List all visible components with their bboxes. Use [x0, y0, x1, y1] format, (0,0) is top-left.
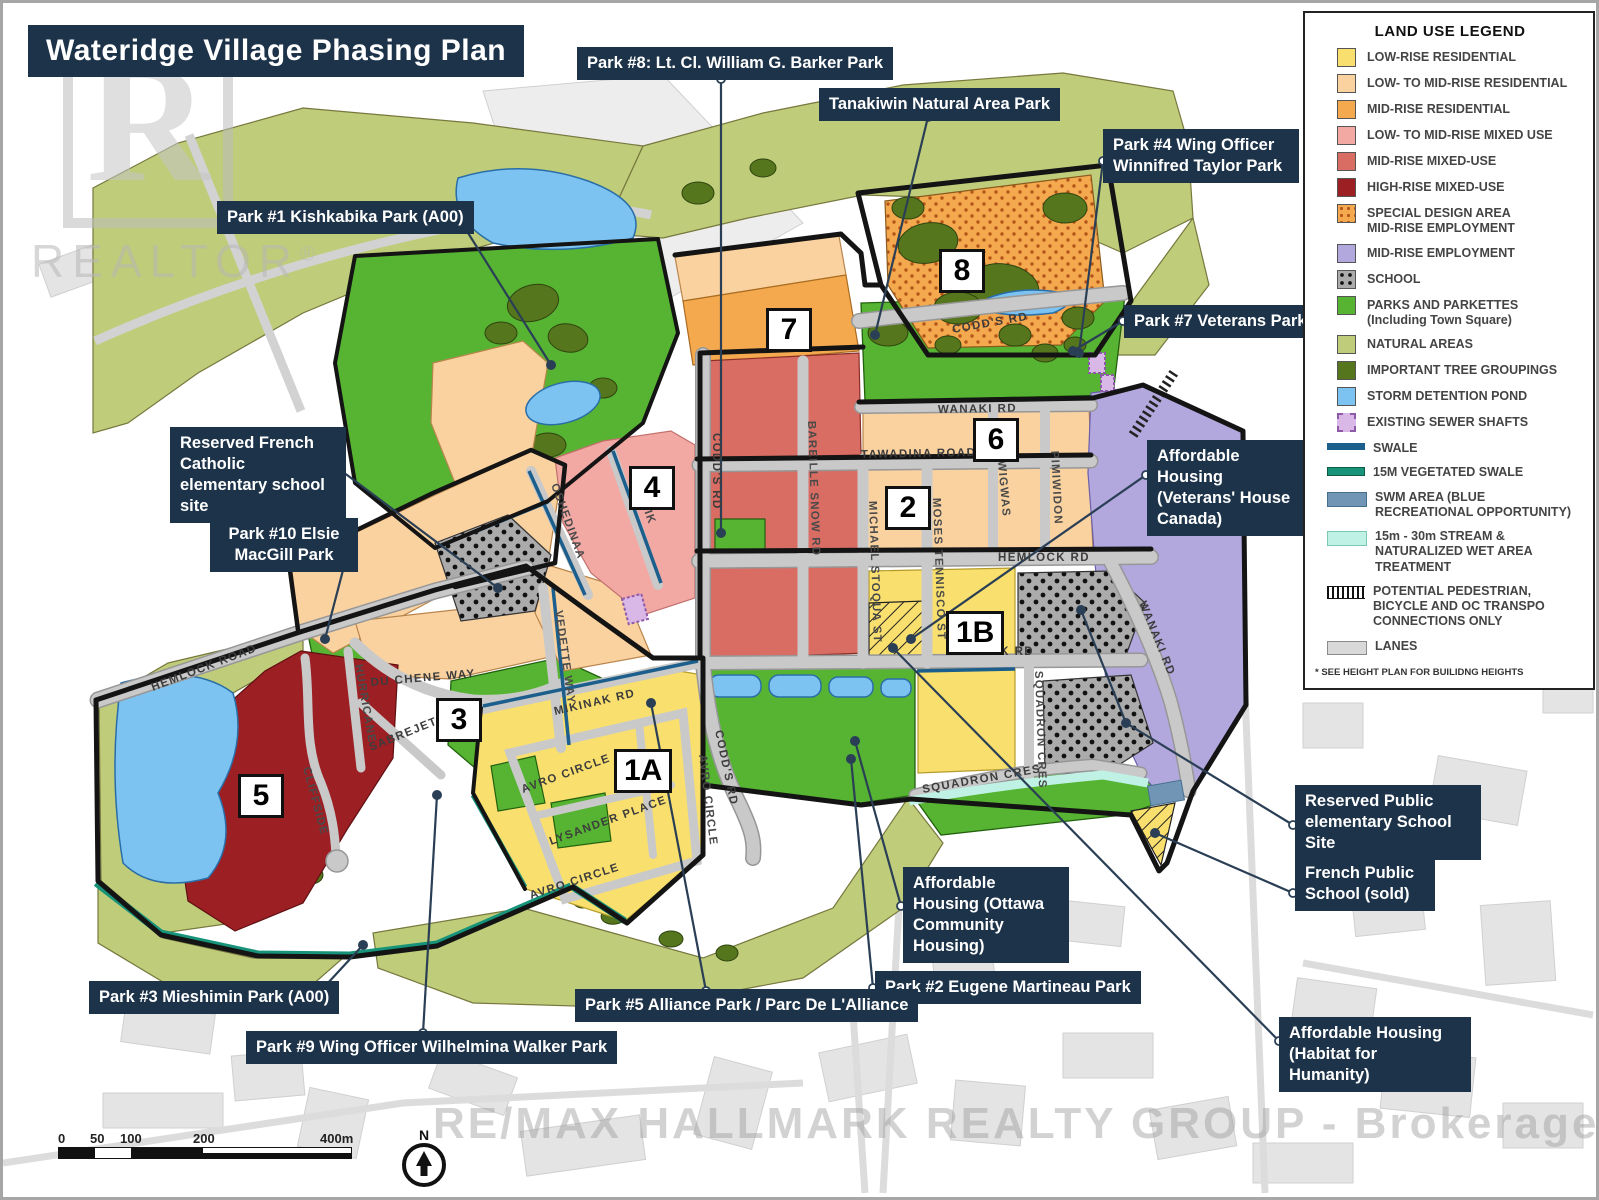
- swatch-mid-mixed: [1337, 152, 1356, 171]
- swatch-stream: [1327, 531, 1367, 546]
- callout-park1: Park #1 Kishkabika Park (A00): [217, 201, 474, 234]
- phase-label-1a: 1A: [614, 749, 672, 793]
- swatch-swm: [1327, 492, 1367, 507]
- callout-park3: Park #3 Mieshimin Park (A00): [89, 981, 339, 1014]
- callout-park5: Park #5 Alliance Park / Parc De L'Allian…: [575, 989, 918, 1022]
- phase-label-5: 5: [238, 774, 284, 818]
- scale-tick-100: 100: [120, 1131, 142, 1146]
- swatch-mid-res: [1337, 100, 1356, 119]
- street-label-codds-rd-central: CODD'S RD: [710, 433, 722, 510]
- swatch-parks: [1337, 296, 1356, 315]
- phase-label-8: 8: [939, 249, 985, 293]
- legend-item-tree-groupings: IMPORTANT TREE GROUPINGS: [1315, 361, 1585, 380]
- callout-french-public-school: French Public School (sold): [1295, 857, 1435, 911]
- callout-park10: Park #10 Elsie MacGill Park: [210, 518, 358, 572]
- phase-label-3: 3: [436, 698, 482, 742]
- page-title: Wateridge Village Phasing Plan: [28, 25, 524, 77]
- legend-item-veg-swale: 15M VEGETATED SWALE: [1315, 463, 1585, 480]
- swatch-swale: [1327, 443, 1365, 450]
- cliffside-cul-de-sac: [326, 850, 348, 872]
- legend-item-mid-residential: MID-RISE RESIDENTIAL: [1315, 100, 1585, 119]
- callout-public-school: Reserved Public elementary School Site: [1295, 785, 1481, 860]
- legend-item-pedestrian: POTENTIAL PEDESTRIAN, BICYCLE AND OC TRA…: [1315, 582, 1585, 630]
- legend-item-low-mid-mixed: LOW- TO MID-RISE MIXED USE: [1315, 126, 1585, 145]
- legend-item-sewer-shafts: EXISTING SEWER SHAFTS: [1315, 413, 1585, 432]
- legend-item-mid-mixed: MID-RISE MIXED-USE: [1315, 152, 1585, 171]
- legend-item-swm-area: SWM AREA (BLUE RECREATIONAL OPPORTUNITY): [1315, 488, 1585, 521]
- callout-habitat: Affordable Housing (Habitat for Humanity…: [1279, 1017, 1471, 1092]
- legend-item-swale: SWALE: [1315, 439, 1585, 456]
- phase-label-6: 6: [973, 418, 1019, 462]
- swatch-lanes: [1327, 641, 1367, 655]
- callout-ottawa-community-housing: Affordable Housing (Ottawa Community Hou…: [903, 867, 1069, 963]
- zone-mid-mixed-r3: [703, 561, 867, 659]
- phasing-plan-page: CODD'S RD CODD'S RD CODD'S RD WANAKI RD …: [0, 0, 1599, 1200]
- swatch-mid-employment: [1337, 244, 1356, 263]
- land-use-legend: LAND USE LEGEND LOW-RISE RESIDENTIAL LOW…: [1303, 11, 1595, 690]
- swatch-pedestrian: [1327, 586, 1365, 599]
- legend-item-high-mixed: HIGH-RISE MIXED-USE: [1315, 178, 1585, 197]
- swatch-sewer: [1337, 413, 1356, 432]
- scale-tick-0: 0: [58, 1131, 65, 1146]
- legend-item-low-rise-residential: LOW-RISE RESIDENTIAL: [1315, 48, 1585, 67]
- scale-bar: 0 50 100 200 400m: [58, 1131, 358, 1159]
- callout-french-catholic-school: Reserved French Catholic elementary scho…: [170, 427, 346, 523]
- phase-label-2: 2: [885, 486, 931, 530]
- swatch-high-mixed: [1337, 178, 1356, 197]
- swatch-trees: [1337, 361, 1356, 380]
- callout-tanakiwin: Tanakiwin Natural Area Park: [819, 88, 1060, 121]
- swatch-veg-swale: [1327, 467, 1365, 476]
- legend-item-mid-employment: MID-RISE EMPLOYMENT: [1315, 244, 1585, 263]
- legend-title: LAND USE LEGEND: [1315, 23, 1585, 40]
- swatch-low-mid-mixed: [1337, 126, 1356, 145]
- swatch-low-rise: [1337, 48, 1356, 67]
- street-label-hemlock-rd: HEMLOCK RD: [998, 552, 1090, 564]
- scale-tick-200: 200: [193, 1131, 215, 1146]
- callout-park7: Park #7 Veterans Park: [1124, 305, 1316, 338]
- legend-item-stream: 15m - 30m STREAM & NATURALIZED WET AREA …: [1315, 527, 1585, 575]
- street-label-tawadina-road: TAWADINA ROAD: [861, 447, 977, 461]
- legend-item-low-mid-residential: LOW- TO MID-RISE RESIDENTIAL: [1315, 74, 1585, 93]
- phase-label-1b: 1B: [946, 611, 1004, 655]
- scale-tick-50: 50: [90, 1131, 104, 1146]
- legend-item-parks: PARKS AND PARKETTES (Including Town Squa…: [1315, 296, 1585, 329]
- legend-item-natural-areas: NATURAL AREAS: [1315, 335, 1585, 354]
- legend-item-special-design: SPECIAL DESIGN AREA MID-RISE EMPLOYMENT: [1315, 204, 1585, 237]
- scale-tick-400: 400m: [320, 1131, 353, 1146]
- callout-park8: Park #8: Lt. Cl. William G. Barker Park: [577, 47, 893, 80]
- callout-veterans-house: Affordable Housing (Veterans' House Cana…: [1147, 440, 1315, 536]
- swatch-school: [1337, 270, 1356, 289]
- callout-park4: Park #4 Wing Officer Winnifred Taylor Pa…: [1103, 129, 1299, 183]
- swatch-natural: [1337, 335, 1356, 354]
- legend-item-lanes: LANES: [1315, 637, 1585, 655]
- swatch-pond: [1337, 387, 1356, 406]
- phase-label-7: 7: [766, 308, 812, 352]
- street-label-wanaki-rd: WANAKI RD: [938, 403, 1017, 416]
- phase-label-4: 4: [629, 466, 675, 510]
- callout-park9: Park #9 Wing Officer Wilhelmina Walker P…: [246, 1031, 617, 1064]
- swatch-special-design: [1337, 204, 1356, 223]
- legend-item-school: SCHOOL: [1315, 270, 1585, 289]
- scale-bar-segments: [58, 1147, 352, 1159]
- legend-item-storm-pond: STORM DETENTION POND: [1315, 387, 1585, 406]
- zone-mid-mixed-r1: [703, 353, 861, 459]
- swatch-low-mid-res: [1337, 74, 1356, 93]
- legend-footnote: * SEE HEIGHT PLAN FOR BUILIDNG HEIGHTS: [1315, 667, 1585, 678]
- brokerage-watermark: RE/MAX HALLMARK REALTY GROUP - Brokerage: [433, 1099, 1599, 1149]
